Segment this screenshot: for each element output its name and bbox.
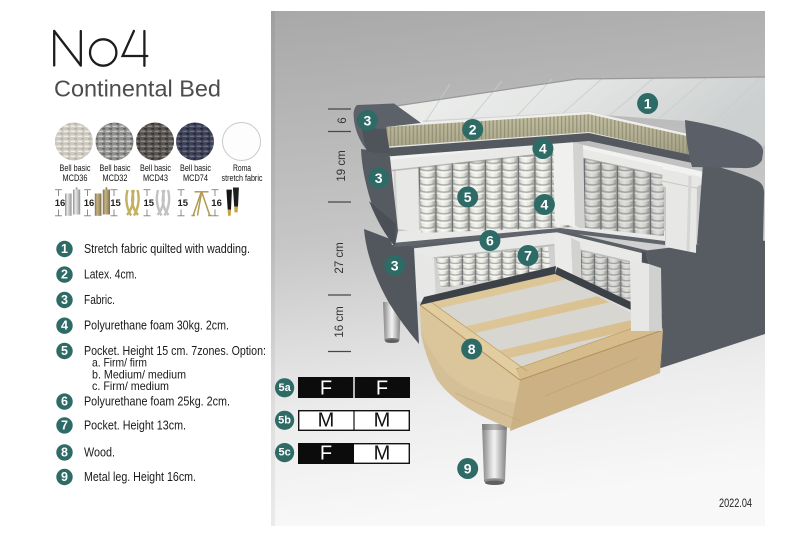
svg-text:1: 1	[61, 242, 68, 256]
svg-text:MCD32: MCD32	[103, 173, 128, 184]
svg-text:1: 1	[644, 96, 652, 112]
svg-text:Stretch fabric quilted with wa: Stretch fabric quilted with wadding.	[84, 242, 250, 256]
svg-text:Fabric.: Fabric.	[84, 293, 115, 307]
svg-text:8: 8	[61, 445, 68, 459]
svg-text:F: F	[320, 378, 332, 400]
svg-text:3: 3	[391, 258, 399, 274]
svg-text:16: 16	[211, 198, 222, 209]
svg-text:3: 3	[364, 112, 372, 128]
svg-text:6: 6	[337, 117, 349, 123]
svg-text:2: 2	[469, 122, 477, 138]
svg-text:15: 15	[178, 198, 189, 209]
svg-text:15: 15	[110, 198, 121, 209]
svg-text:4: 4	[539, 141, 547, 157]
svg-text:16: 16	[84, 198, 95, 209]
svg-text:4: 4	[541, 197, 549, 213]
svg-text:6: 6	[486, 233, 494, 249]
svg-text:3: 3	[61, 293, 68, 307]
svg-text:19 cm: 19 cm	[336, 150, 348, 181]
svg-text:F: F	[376, 378, 388, 400]
svg-text:F: F	[320, 443, 332, 465]
svg-text:Latex. 4cm.: Latex. 4cm.	[84, 268, 137, 282]
svg-text:Pocket. Height 13cm.: Pocket. Height 13cm.	[84, 418, 186, 432]
svg-text:5: 5	[464, 189, 472, 205]
svg-text:Metal leg. Height 16cm.: Metal leg. Height 16cm.	[84, 470, 196, 484]
svg-text:8: 8	[468, 341, 476, 357]
svg-text:5b: 5b	[278, 414, 291, 426]
svg-text:7: 7	[524, 248, 532, 264]
svg-text:16: 16	[55, 198, 66, 209]
svg-text:5: 5	[61, 344, 68, 358]
svg-text:MCD36: MCD36	[63, 173, 88, 184]
svg-text:9: 9	[464, 461, 472, 477]
svg-text:7: 7	[61, 418, 68, 432]
svg-text:Wood.: Wood.	[84, 445, 115, 459]
svg-text:c. Firm/ medium: c. Firm/ medium	[92, 379, 169, 393]
svg-text:2022.04: 2022.04	[719, 496, 752, 510]
svg-text:9: 9	[61, 470, 68, 484]
svg-text:MCD74: MCD74	[183, 173, 208, 184]
svg-text:5c: 5c	[278, 447, 290, 459]
svg-text:M: M	[374, 443, 391, 465]
svg-text:M: M	[318, 410, 335, 432]
svg-text:stretch fabric: stretch fabric	[222, 173, 263, 184]
svg-text:16 cm: 16 cm	[334, 306, 346, 337]
svg-text:3: 3	[375, 170, 383, 186]
svg-text:Polyurethane foam 25kg. 2cm.: Polyurethane foam 25kg. 2cm.	[84, 395, 230, 409]
svg-text:Continental Bed: Continental Bed	[54, 76, 221, 102]
svg-text:2: 2	[61, 268, 68, 282]
svg-text:Polyurethane foam 30kg. 2cm.: Polyurethane foam 30kg. 2cm.	[84, 319, 229, 333]
svg-text:15: 15	[144, 198, 155, 209]
svg-text:27 cm: 27 cm	[334, 242, 346, 273]
svg-text:5a: 5a	[278, 382, 291, 394]
svg-text:MCD43: MCD43	[143, 173, 168, 184]
svg-text:M: M	[374, 410, 391, 432]
svg-text:4: 4	[61, 319, 68, 333]
svg-text:6: 6	[61, 395, 68, 409]
